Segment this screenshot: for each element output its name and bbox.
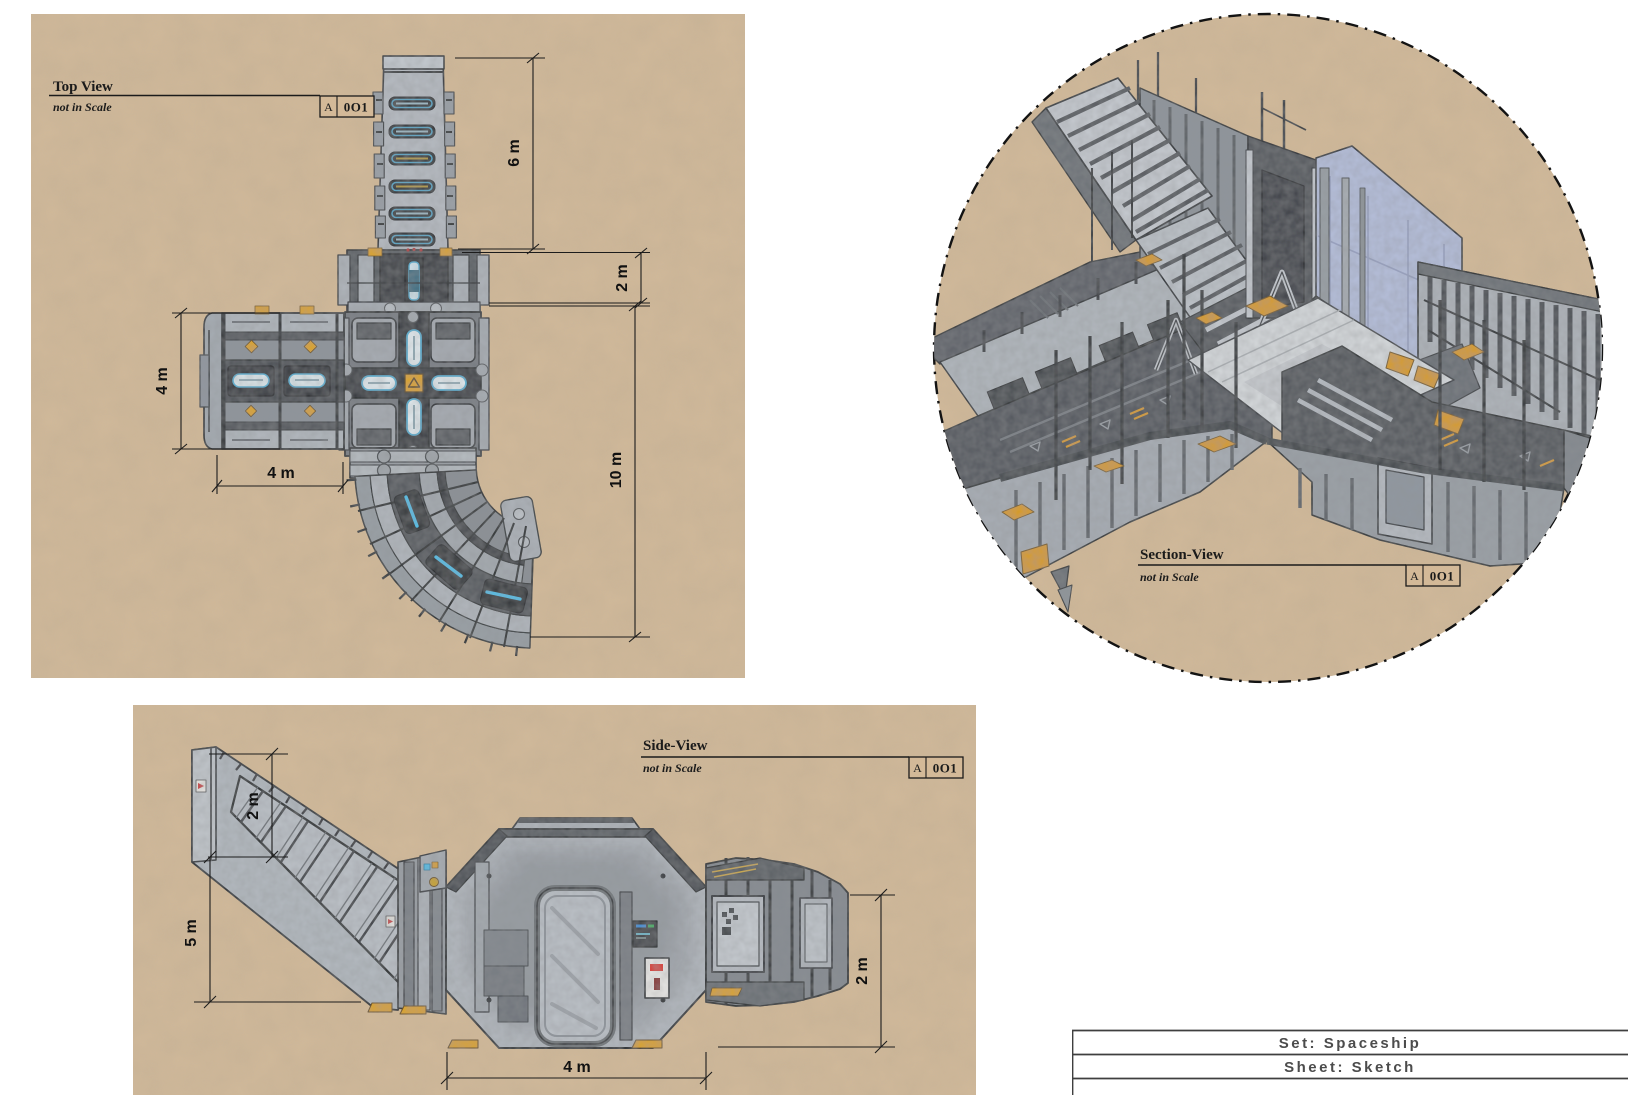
svg-text:Top View: Top View [53, 79, 113, 95]
svg-text:Set: Spaceship: Set: Spaceship [1279, 1035, 1422, 1052]
svg-text:10 m: 10 m [608, 452, 625, 488]
svg-text:Side-View: Side-View [643, 738, 708, 754]
svg-text:6 m: 6 m [506, 139, 523, 167]
svg-text:Sheet: Sketch: Sheet: Sketch [1284, 1059, 1416, 1076]
svg-text:A: A [324, 100, 333, 114]
svg-text:0O1: 0O1 [344, 100, 369, 115]
svg-text:A: A [913, 761, 922, 775]
svg-text:2 m: 2 m [614, 264, 631, 292]
svg-text:not in Scale: not in Scale [53, 100, 112, 114]
svg-text:2 m: 2 m [245, 792, 262, 820]
svg-text:4 m: 4 m [154, 367, 171, 395]
svg-text:not in Scale: not in Scale [1140, 570, 1199, 584]
svg-text:4 m: 4 m [563, 1059, 591, 1076]
svg-text:0O1: 0O1 [933, 761, 958, 776]
svg-text:not in Scale: not in Scale [643, 761, 702, 775]
svg-text:A: A [1410, 569, 1419, 583]
svg-text:Section-View: Section-View [1140, 547, 1224, 563]
svg-text:4 m: 4 m [267, 465, 295, 482]
svg-text:5 m: 5 m [183, 919, 200, 947]
svg-text:0O1: 0O1 [1430, 569, 1455, 584]
svg-text:2 m: 2 m [854, 957, 871, 985]
